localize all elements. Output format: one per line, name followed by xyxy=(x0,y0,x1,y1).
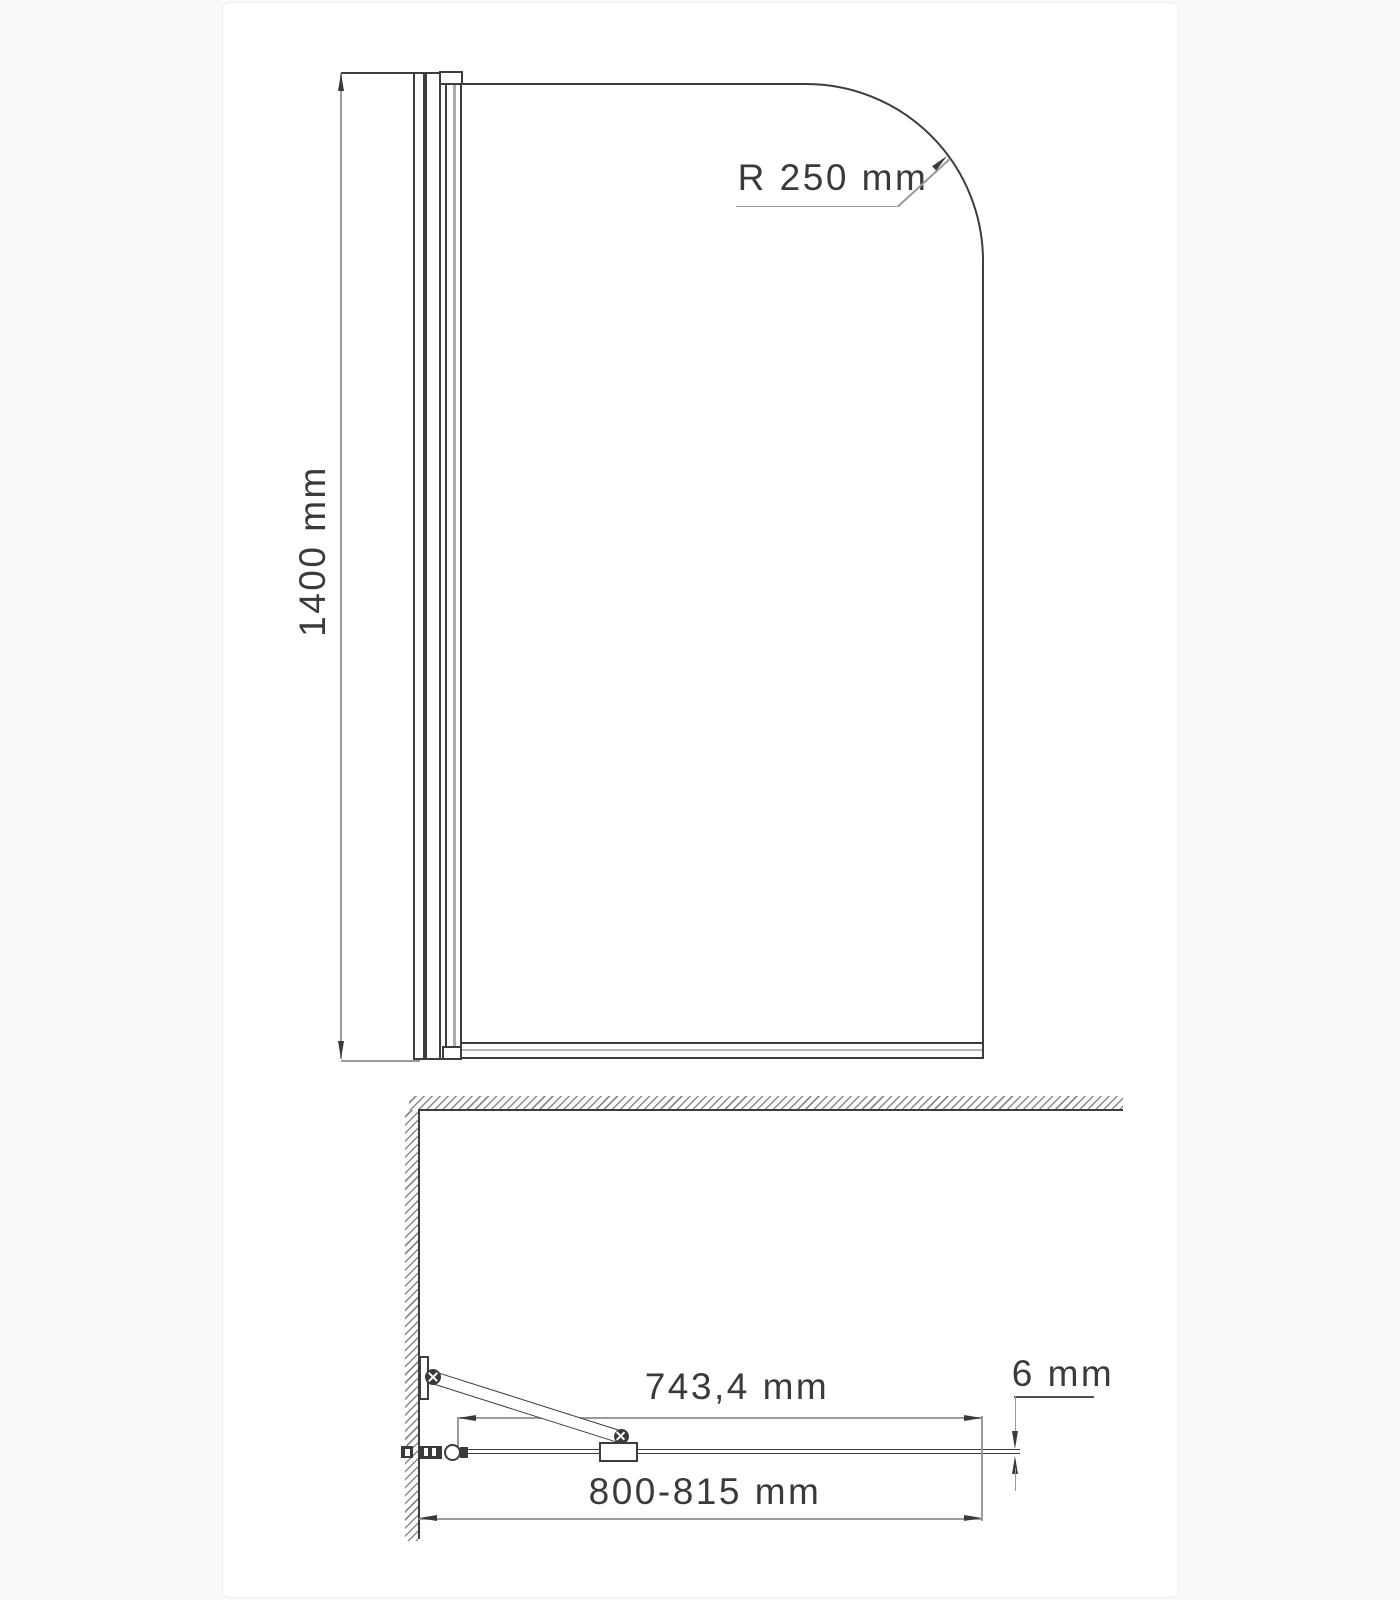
wall-profile-line-inner xyxy=(439,72,441,1059)
arrowhead-down-icon xyxy=(338,1041,344,1059)
arrowhead-left-icon xyxy=(458,1415,476,1421)
thickness-leader-upper xyxy=(1015,1396,1017,1433)
total-width-dimension-label: 800-815 mm xyxy=(565,1472,845,1512)
arrowhead-down-icon xyxy=(1012,1431,1018,1449)
corner-radius-label: R 250 mm xyxy=(723,158,943,198)
wall-hatch-left xyxy=(405,1110,419,1541)
glass-panel-plan xyxy=(466,1449,1020,1454)
wall-profile-line-thick xyxy=(423,72,427,1059)
pivot-dimension-extension xyxy=(457,1417,459,1447)
radius-leader-underline xyxy=(736,206,897,208)
bottom-seal-top-line xyxy=(462,1042,982,1045)
hinge-slot xyxy=(424,1448,429,1456)
arrowhead-right-icon xyxy=(964,1515,982,1521)
arrowhead-left-icon xyxy=(419,1515,437,1521)
bar-clamp-block xyxy=(599,1442,638,1462)
pivot-dimension-line xyxy=(458,1417,982,1419)
bottom-seal-end-block xyxy=(442,1046,462,1061)
wall-profile-line-outer xyxy=(413,72,415,1059)
arrowhead-up-icon xyxy=(338,73,344,91)
upper-pivot-screw-icon xyxy=(425,1369,441,1385)
glass-holder-shading xyxy=(453,84,456,1059)
wall-line-left xyxy=(418,1109,420,1539)
lower-pivot-screw-icon xyxy=(614,1429,629,1444)
hinge-wall-block-inner xyxy=(419,1446,442,1459)
thickness-leader-underline xyxy=(1014,1396,1094,1398)
glass-thickness-label: 6 mm xyxy=(998,1354,1128,1394)
glass-panel xyxy=(460,83,984,1059)
hinge-slot xyxy=(432,1448,436,1456)
pivot-dimension-label: 743,4 mm xyxy=(617,1367,857,1407)
height-dimension-label: 1400 mm xyxy=(293,451,333,651)
hinge-glass-connector xyxy=(460,1447,468,1458)
thickness-leader-lower xyxy=(1015,1468,1017,1491)
hinge-pivot-knuckle xyxy=(444,1444,461,1461)
wall-line-top xyxy=(418,1109,1123,1111)
total-width-dimension-line xyxy=(419,1518,982,1520)
glass-holder-line xyxy=(445,84,447,1059)
height-extension-line-bottom xyxy=(341,1060,420,1062)
wall-hatch-top xyxy=(409,1096,1123,1110)
right-extension-line xyxy=(981,1416,983,1521)
drawing-page: 1400 mm R 250 mm 743,4 mm xyxy=(0,0,1400,1600)
hinge-slot xyxy=(405,1449,410,1456)
bottom-seal-gray-line xyxy=(462,1049,982,1052)
arrowhead-right-icon xyxy=(964,1415,982,1421)
height-dimension-line xyxy=(340,73,342,1059)
